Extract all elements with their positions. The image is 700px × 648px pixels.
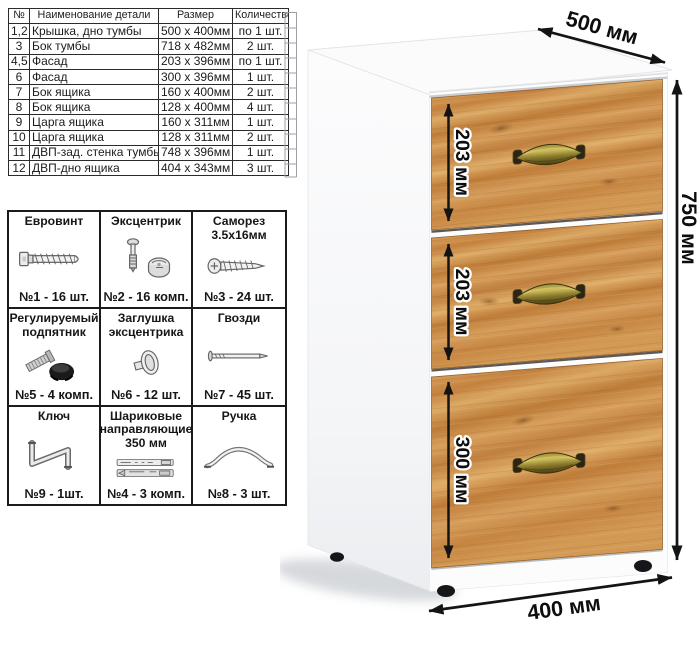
cam-cap-icon — [106, 342, 186, 384]
drawer2-height-label: 203 мм — [451, 269, 473, 336]
hardware-title: Ключ — [38, 410, 70, 424]
cam-lock-icon — [106, 236, 186, 282]
part-number: 3 — [9, 39, 30, 54]
table-row: 4,5 Фасад 203 х 396мм по 1 шт. — [9, 54, 289, 69]
table-row: 9 Царга ящика 160 х 311мм 1 шт. — [9, 115, 289, 130]
part-size: 203 х 396мм — [159, 54, 233, 69]
part-number: 12 — [9, 160, 30, 175]
part-size: 128 х 311мм — [159, 130, 233, 145]
part-number: 9 — [9, 115, 30, 130]
hex-key-icon — [14, 431, 94, 479]
drawer-handle-icon — [199, 432, 279, 478]
part-name: ДВП-зад. стенка тумбы — [30, 145, 159, 160]
part-number: 1,2 — [9, 24, 30, 39]
parts-table-header-cell: Наименование детали — [30, 9, 159, 24]
drawer1-height-label: 203 мм — [451, 129, 473, 196]
part-name: Фасад — [30, 54, 159, 69]
part-size: 404 х 343мм — [159, 160, 233, 175]
cabinet-side-panel — [308, 50, 430, 591]
hardware-title: Саморез 3.5х16мм — [195, 215, 283, 242]
part-size: 500 х 400мм — [159, 24, 233, 39]
cabinet-foot — [330, 552, 344, 562]
euro-screw-icon — [14, 238, 94, 280]
ruler-artifact — [285, 12, 297, 177]
hardware-cell-cam-lock: Эксцентрик №2 - 16 комп. — [101, 212, 193, 309]
assembly-sheet: №Наименование деталиРазмерКоличество 1,2… — [0, 0, 700, 648]
parts-table-header-cell: Размер — [159, 9, 233, 24]
cabinet-body — [308, 30, 672, 597]
height-dimension-label: 750 мм — [677, 191, 700, 265]
ball-bearing-slides-icon — [106, 451, 186, 485]
cabinet-render: 500 мм 750 мм 400 мм 203 мм 203 мм 300 м… — [280, 0, 700, 648]
hardware-cell-handle: Ручка №8 - 3 шт. — [193, 407, 285, 504]
hardware-cell-slides: Шариковые направляющие 350 мм №4 - 3 ком… — [101, 407, 193, 504]
table-row: 12 ДВП-дно ящика 404 х 343мм 3 шт. — [9, 160, 289, 175]
parts-table-header-cell: № — [9, 9, 30, 24]
hardware-count-label: №4 - 3 комп. — [107, 486, 185, 502]
hardware-cell-cam-cap: Заглушка эксцентрика №6 - 12 шт. — [101, 309, 193, 406]
hardware-count-label: №7 - 45 шт. — [204, 387, 274, 403]
hardware-title: Заглушка эксцентрика — [103, 312, 189, 339]
hardware-count-label: №8 - 3 шт. — [208, 486, 271, 502]
nail-icon — [199, 335, 279, 377]
hardware-title: Ручка — [222, 410, 257, 424]
part-name: Бок ящика — [30, 100, 159, 115]
self-tapping-screw-icon — [199, 246, 279, 286]
hardware-grid: Евровинт №1 - 16 шт. Эксцентрик — [7, 210, 287, 506]
hardware-title: Евровинт — [25, 215, 84, 229]
hardware-count-label: №5 - 4 комп. — [15, 387, 93, 403]
part-size: 160 х 311мм — [159, 115, 233, 130]
part-number: 4,5 — [9, 54, 30, 69]
part-name: ДВП-дно ящика — [30, 160, 159, 175]
hardware-cell-adjustable-foot: Регулируемый подпятник №5 - 4 комп. — [9, 309, 101, 406]
part-size: 718 х 482мм — [159, 39, 233, 54]
part-number: 7 — [9, 84, 30, 99]
part-name: Бок ящика — [30, 84, 159, 99]
hardware-count-label: №6 - 12 шт. — [111, 387, 181, 403]
hardware-count-label: №9 - 1шт. — [24, 486, 83, 502]
hardware-cell-nails: Гвозди №7 - 45 шт. — [193, 309, 285, 406]
part-size: 160 х 400мм — [159, 84, 233, 99]
part-number: 6 — [9, 69, 30, 84]
hardware-cell-euro-screw: Евровинт №1 - 16 шт. — [9, 212, 101, 309]
hardware-title: Регулируемый подпятник — [10, 312, 99, 339]
cabinet-foot — [634, 560, 652, 572]
part-number: 10 — [9, 130, 30, 145]
part-number: 11 — [9, 145, 30, 160]
table-row: 11 ДВП-зад. стенка тумбы 748 х 396мм 1 ш… — [9, 145, 289, 160]
cabinet-foot — [437, 585, 455, 597]
table-row: 3 Бок тумбы 718 х 482мм 2 шт. — [9, 39, 289, 54]
hardware-count-label: №3 - 24 шт. — [204, 289, 274, 305]
part-name: Бок тумбы — [30, 39, 159, 54]
part-size: 748 х 396мм — [159, 145, 233, 160]
adjustable-foot-icon — [14, 342, 94, 384]
part-name: Крышка, дно тумбы — [30, 24, 159, 39]
parts-table: №Наименование деталиРазмерКоличество 1,2… — [8, 8, 289, 176]
table-row: 6 Фасад 300 х 396мм 1 шт. — [9, 69, 289, 84]
part-size: 128 х 400мм — [159, 100, 233, 115]
hardware-count-label: №1 - 16 шт. — [19, 289, 89, 305]
table-row: 7 Бок ящика 160 х 400мм 2 шт. — [9, 84, 289, 99]
hardware-count-label: №2 - 16 комп. — [103, 289, 188, 305]
table-row: 10 Царга ящика 128 х 311мм 2 шт. — [9, 130, 289, 145]
hardware-title: Гвозди — [218, 312, 261, 326]
table-row: 1,2 Крышка, дно тумбы 500 х 400мм по 1 ш… — [9, 24, 289, 39]
hardware-cell-self-tapping-screw: Саморез 3.5х16мм №3 - 24 шт. — [193, 212, 285, 309]
part-number: 8 — [9, 100, 30, 115]
part-name: Фасад — [30, 69, 159, 84]
parts-table-header-row: №Наименование деталиРазмерКоличество — [9, 9, 289, 24]
hardware-cell-key: Ключ №9 - 1шт. — [9, 407, 101, 504]
hardware-title: Шариковые направляющие 350 мм — [100, 410, 193, 451]
part-size: 300 х 396мм — [159, 69, 233, 84]
table-row: 8 Бок ящика 128 х 400мм 4 шт. — [9, 100, 289, 115]
drawer3-height-label: 300 мм — [451, 437, 473, 504]
hardware-title: Эксцентрик — [111, 215, 181, 229]
part-name: Царга ящика — [30, 115, 159, 130]
part-name: Царга ящика — [30, 130, 159, 145]
